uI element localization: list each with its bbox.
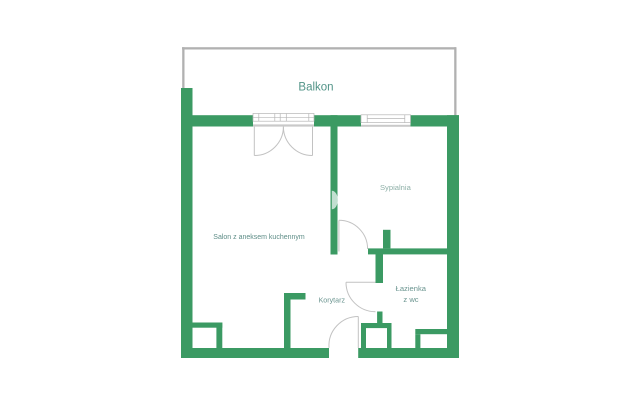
svg-text:Korytarz: Korytarz — [319, 296, 346, 304]
svg-text:z wc: z wc — [403, 295, 418, 304]
svg-text:Balkon: Balkon — [298, 82, 333, 94]
svg-text:Łazienka: Łazienka — [396, 284, 427, 293]
svg-text:Salon z aneksem kuchennym: Salon z aneksem kuchennym — [213, 234, 305, 241]
svg-text:Sypialnia: Sypialnia — [380, 183, 412, 192]
